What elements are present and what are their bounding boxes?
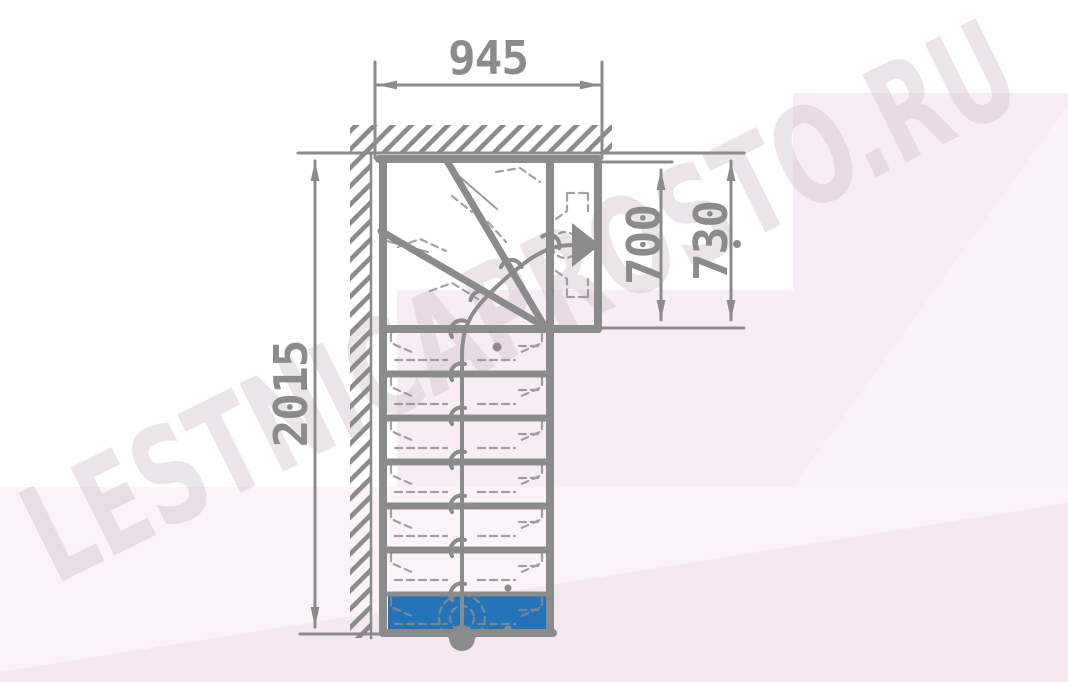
stair-plan-drawing: LESTNICAPROSTO.RU [0,0,1068,682]
walk-line-start-marker [449,625,475,651]
dim-label-left-total: 2015 [264,341,318,448]
dim-label-top-width: 945 [448,31,528,85]
dim-label-exit-outer: 730 [684,201,738,281]
detail-dot [505,626,512,633]
left-wall-hatch [350,125,371,638]
detail-dot [493,343,502,352]
dim-label-exit-inner: 700 [617,205,671,285]
detail-dot [505,585,512,592]
top-wall-hatch [356,125,612,152]
stair-drawing-canvas: LESTNICAPROSTO.RU [0,0,1068,682]
